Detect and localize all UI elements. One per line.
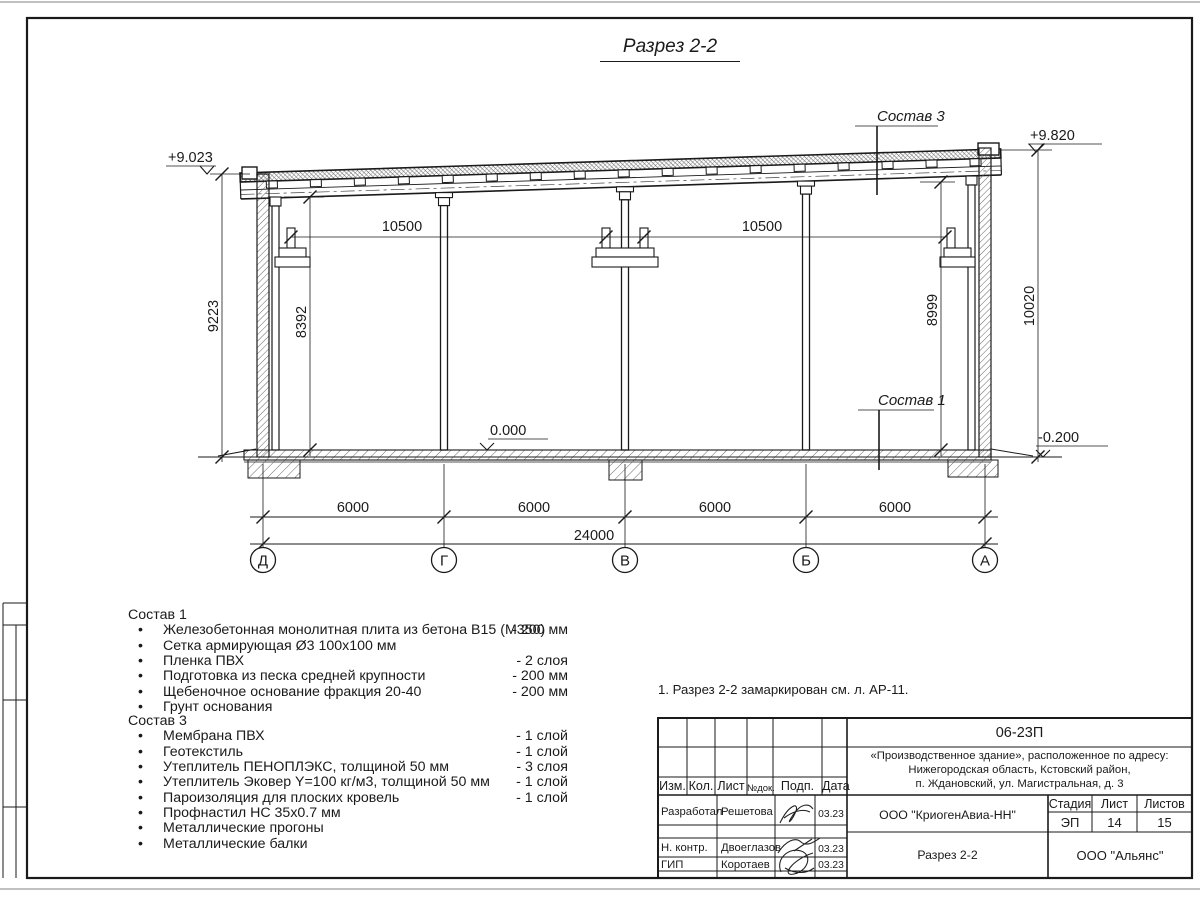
tb-name-ncontrol: Двоеглазов — [721, 842, 781, 854]
list-item: •Металлические балки — [128, 837, 568, 852]
tb-sheets-label: Листов — [1137, 797, 1192, 811]
tb-name-gip: Коротаев — [721, 859, 770, 871]
tb-contractor: ООО "Альянс" — [1048, 848, 1192, 863]
list-item: •Мембрана ПВХ- 1 слой — [128, 729, 568, 744]
crane-bracket-left — [275, 228, 310, 267]
composition-3-list: Состав 3 •Мембрана ПВХ- 1 слой •Геотекст… — [128, 714, 568, 852]
column-g — [436, 193, 453, 450]
item-value: - 1 слой — [128, 775, 568, 790]
column-b — [798, 181, 815, 450]
drawing-note: 1. Разрез 2-2 замаркирован см. л. АР-11. — [658, 682, 908, 697]
axis-label-v: В — [620, 553, 630, 570]
stamp-side-boxes — [3, 603, 27, 878]
list-item: •Подготовка из песка средней крупности- … — [128, 669, 568, 684]
column-v — [617, 187, 634, 450]
tb-sheets-value: 15 — [1137, 815, 1192, 830]
tb-col-kol: Кол. — [687, 779, 715, 793]
item-value: - 2 слоя — [128, 654, 568, 669]
dim-total: 24000 — [574, 528, 614, 544]
list-item: •Утеплитель Эковер Y=100 кг/м3, толщиной… — [128, 775, 568, 790]
dim-bay-3: 6000 — [699, 500, 731, 516]
tb-project-line2: Нижегородская область, Кстовский район, — [847, 764, 1192, 778]
item-value: - 200 мм — [128, 685, 568, 700]
left-parapet-cap — [242, 167, 257, 179]
dim-crane-left: 10500 — [382, 219, 422, 235]
tb-sheet-value: 14 — [1092, 815, 1137, 830]
list-item: •Пароизоляция для плоских кровель- 1 сло… — [128, 791, 568, 806]
list-item: •Щебеночное основание фракция 20-40- 200… — [128, 685, 568, 700]
list-item: •Металлические прогоны — [128, 821, 568, 836]
callout-floor-label: Состав 1 — [878, 392, 946, 409]
axis-label-d: Д — [258, 553, 268, 570]
list-item: •Геотекстиль- 1 слой — [128, 745, 568, 760]
dim-left-outer: 9223 — [206, 300, 222, 332]
signature-reshetova — [780, 805, 813, 823]
left-wall-column — [272, 206, 279, 450]
tb-drawing-name: Разрез 2-2 — [847, 848, 1048, 862]
foundation-left — [248, 460, 300, 478]
tb-project-address: «Производственное здание», расположенное… — [847, 750, 1192, 791]
item-text: Сетка армирующая Ø3 100х100 мм — [163, 639, 396, 654]
item-text: Профнастил НС 35х0.7 мм — [163, 806, 341, 821]
axis-label-b: Б — [801, 553, 811, 570]
item-value: - 200 мм — [128, 623, 568, 638]
tb-col-podp: Подп. — [773, 779, 822, 793]
composition-3-title: Состав 3 — [128, 714, 568, 729]
tb-sheet-label: Лист — [1092, 797, 1137, 811]
tb-project-line3: п. Ждановский, ул. Магистральная, д. 3 — [847, 778, 1192, 792]
item-value: - 3 слоя — [128, 760, 568, 775]
tb-stage-value: ЭП — [1048, 815, 1092, 830]
callout-roof-label: Состав 3 — [877, 108, 945, 125]
tb-role-ncontrol: Н. контр. — [661, 842, 708, 854]
composition-1-title: Состав 1 — [128, 608, 568, 623]
elevation-top-right: +9.820 — [1030, 128, 1075, 144]
tb-col-data: Дата — [822, 779, 847, 793]
tb-doc-number: 06-23П — [847, 725, 1192, 741]
tb-col-ndok: №док. — [747, 783, 773, 794]
list-item: •Профнастил НС 35х0.7 мм — [128, 806, 568, 821]
list-item: •Сетка армирующая Ø3 100х100 мм — [128, 639, 568, 654]
item-value: - 200 мм — [128, 669, 568, 684]
dim-bay-1: 6000 — [337, 500, 369, 516]
list-item: •Пленка ПВХ- 2 слоя — [128, 654, 568, 669]
dim-crane-right: 10500 — [742, 219, 782, 235]
list-item: •Железобетонная монолитная плита из бето… — [128, 623, 568, 638]
tb-role-gip: ГИП — [661, 859, 683, 871]
left-wall — [257, 174, 269, 457]
tb-date-developed: 03.23 — [815, 809, 847, 820]
axis-label-a: А — [980, 553, 990, 570]
item-value: - 1 слой — [128, 729, 568, 744]
dim-left-inner: 8392 — [294, 306, 310, 338]
elevation-ground: -0.200 — [1038, 430, 1079, 446]
tb-col-list: Лист — [715, 779, 747, 793]
item-text: Металлические балки — [163, 837, 308, 852]
dim-right-outer: 10020 — [1022, 286, 1038, 326]
bullet-icon: • — [138, 821, 143, 836]
tb-org: ООО "КриогенАвиа-НН" — [847, 808, 1048, 822]
tb-col-izm: Изм. — [658, 779, 687, 793]
item-value: - 1 слой — [128, 791, 568, 806]
right-wall — [979, 148, 991, 457]
elevation-floor: 0.000 — [490, 423, 526, 439]
dim-right-inner: 8999 — [925, 294, 941, 326]
tb-project-line1: «Производственное здание», расположенное… — [847, 750, 1192, 764]
tb-date-ncontrol: 03.23 — [815, 844, 847, 855]
foundation-middle — [609, 460, 642, 480]
right-wall-column — [968, 185, 975, 450]
bullet-icon: • — [138, 806, 143, 821]
tb-name-developed: Решетова — [721, 806, 773, 818]
signatures — [778, 805, 820, 874]
tb-date-gip: 03.23 — [815, 860, 847, 871]
bullet-icon: • — [138, 837, 143, 852]
list-item: •Утеплитель ПЕНОПЛЭКС, толщиной 50 мм- 3… — [128, 760, 568, 775]
tb-stage-label: Стадия — [1048, 797, 1092, 811]
foundation-right — [948, 460, 998, 477]
elevation-top-left: +9.023 — [168, 150, 213, 166]
composition-1-list: Состав 1 •Железобетонная монолитная плит… — [128, 608, 568, 715]
item-text: Металлические прогоны — [163, 821, 324, 836]
axis-bubbles: Д Г В Б А — [251, 548, 998, 573]
axis-label-g: Г — [440, 553, 448, 570]
dim-bay-2: 6000 — [518, 500, 550, 516]
item-value: - 1 слой — [128, 745, 568, 760]
page-title: Разрез 2-2 — [600, 36, 740, 62]
bullet-icon: • — [138, 639, 143, 654]
tb-role-developed: Разработал — [661, 806, 723, 818]
dim-bay-4: 6000 — [879, 500, 911, 516]
